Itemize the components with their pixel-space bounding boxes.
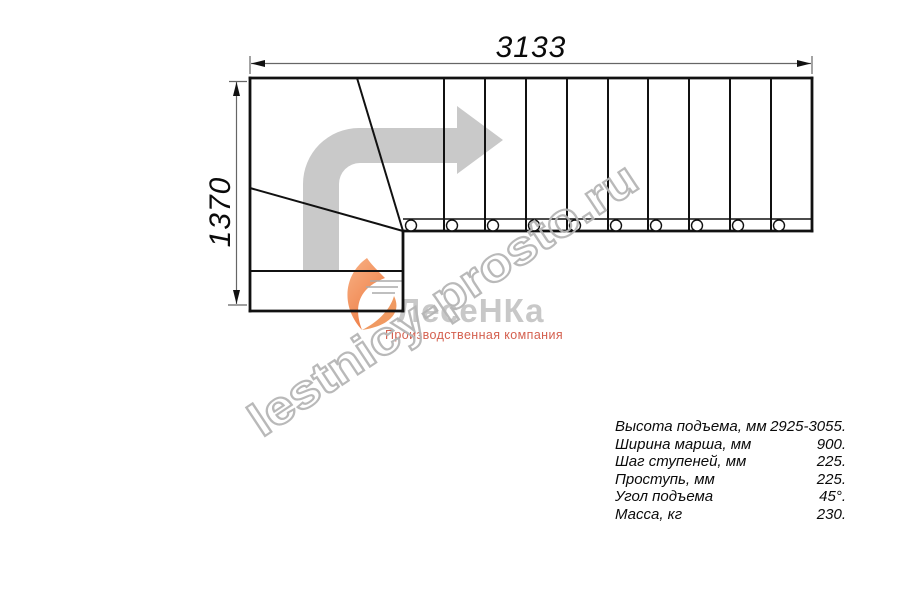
dimension-width: 3133 [250, 31, 812, 74]
spec-label: Шаг ступеней, мм [615, 453, 746, 471]
spec-label: Проступь, мм [615, 471, 715, 489]
table-row: Шаг ступеней, мм 225. [615, 453, 846, 471]
baluster-circles [406, 220, 785, 231]
table-row: Ширина марша, мм 900. [615, 436, 846, 454]
spec-label: Ширина марша, мм [615, 436, 751, 454]
dim-arrow-left [251, 60, 265, 67]
staircase-drawing-page: ЛесеНКа Производственная компания [0, 0, 900, 600]
table-row: Масса, кг 230. [615, 506, 846, 524]
dimension-width-label: 3133 [496, 31, 567, 64]
dim-arrow-right [797, 60, 811, 67]
spec-label: Угол подъема [615, 488, 713, 506]
table-row: Проступь, мм 225. [615, 471, 846, 489]
table-row: Угол подъема 45°. [615, 488, 846, 506]
dim-arrow-top [233, 82, 240, 96]
spec-value: 230. [817, 506, 846, 524]
spec-label: Масса, кг [615, 506, 682, 524]
dimension-height: 1370 [204, 82, 247, 306]
spec-value: 2925-3055. [770, 418, 846, 436]
spec-value: 900. [817, 436, 846, 454]
spec-value: 225. [817, 453, 846, 471]
dimension-height-label: 1370 [204, 177, 237, 248]
table-row: Высота подъема, мм 2925-3055. [615, 418, 846, 436]
spec-value: 225. [817, 471, 846, 489]
dim-arrow-bottom [233, 290, 240, 304]
spec-label: Высота подъема, мм [615, 418, 767, 436]
spec-table: Высота подъема, мм 2925-3055. Ширина мар… [615, 418, 846, 524]
spec-value: 45°. [819, 488, 846, 506]
